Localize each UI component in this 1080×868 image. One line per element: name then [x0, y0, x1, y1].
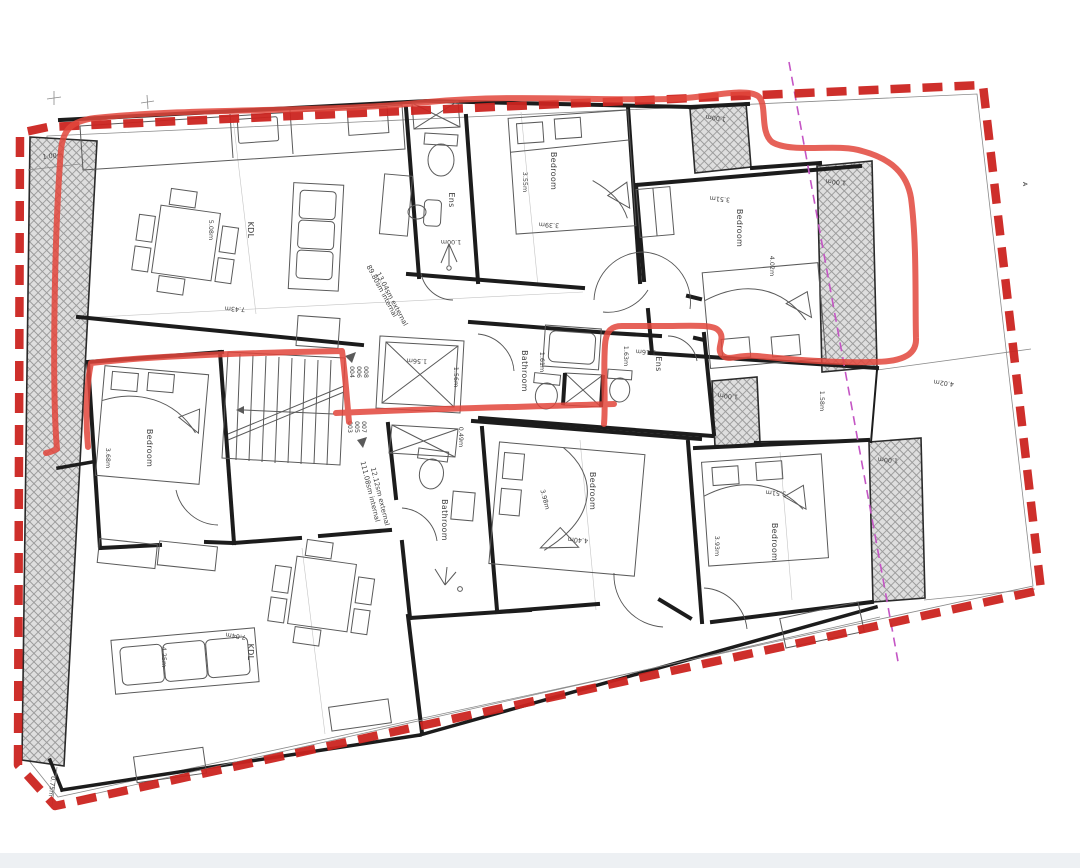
dim-1-58: 1.58m [818, 391, 826, 411]
dim-1-56-side: 1.56m [452, 367, 460, 387]
room-label-bathroom-center: Bathroom [520, 350, 529, 392]
room-label-bedroom-top: Bedroom [549, 152, 558, 190]
dim-4-25: 4.25m [160, 647, 168, 667]
room-label-bathroom-bottom: Bathroom [440, 499, 449, 541]
dim-4-02-room: 4.02m [768, 256, 776, 276]
room-label-kdl-bottom: KDL [246, 644, 255, 661]
marker-stroke-left [87, 351, 349, 447]
dim-3-68: 3.68m [104, 448, 112, 468]
shower-head-bottom [435, 567, 456, 585]
hatch-wall-mid [712, 377, 760, 447]
dim-3-51-bottomright: 3.51m [765, 488, 786, 497]
unit-007: 007 [360, 421, 367, 433]
sofa-top [288, 183, 343, 291]
dim-0-49: 0.49m [457, 427, 465, 447]
lift-shaft [376, 336, 464, 413]
area-upper-external: 13.04sm external [374, 271, 409, 328]
dim-3-51-topright: 3.51m [709, 194, 730, 204]
room-label-bedroom-bottomright: Bedroom [770, 523, 779, 561]
dim-3-93: 3.93m [713, 536, 721, 556]
footer-bar [0, 853, 1080, 868]
dining-table-bottom [265, 536, 379, 653]
marker-stroke-corridor [336, 404, 614, 413]
bed-bottom-middle [489, 442, 645, 576]
room-label-bedroom-bottomleft: Bedroom [145, 429, 154, 467]
dim-7-43: 7.43m [224, 304, 245, 313]
dim-0-75: 0.75m [47, 776, 57, 797]
dim-4-02-site: 4.02m [933, 378, 954, 388]
flat-arrow-up [345, 352, 356, 363]
room-label-ens-right: Ens [654, 356, 663, 371]
ensuite-right-fixtures [606, 369, 632, 403]
dim-5-08: 5.08m [207, 220, 215, 240]
wardrobe-bottom-left [97, 535, 217, 575]
dim-7-04: 7.04m [225, 631, 246, 642]
floorplan-drawing: KDL 5.08m 7.43m 89.80sm internal 13.04sm… [0, 0, 1080, 868]
room-label-kdl-top: KDL [246, 222, 255, 239]
staircase [222, 352, 345, 465]
floorplan-canvas: KDL 5.08m 7.43m 89.80sm internal 13.04sm… [0, 0, 1080, 868]
desk-top [379, 174, 412, 236]
flat-arrow-down [357, 437, 367, 448]
room-label-ens-top: Ens [447, 192, 456, 207]
dim-1-00-hatch-rightbottom: 1.00m [877, 455, 898, 464]
dim-4-40: 4.40m [567, 535, 588, 544]
unit-004: 004 [348, 366, 355, 378]
unit-006: 006 [355, 366, 362, 378]
hatch-wall-left [22, 137, 97, 766]
dim-3-55: 3.55m [521, 172, 529, 192]
marker-annotations [46, 92, 916, 453]
shower-head-top [441, 244, 457, 265]
hatch-wall-top-mid [690, 103, 751, 173]
dim-1-63: 1.63m [622, 346, 630, 366]
marker-stroke-loop [46, 92, 916, 453]
unit-005: 005 [353, 421, 360, 433]
dim-3-39: 3.39m [538, 220, 559, 229]
dim-1-16: 1.16m [635, 347, 656, 356]
room-label-bedroom-bottommid: Bedroom [588, 472, 597, 510]
dim-1-61: 1.61m [538, 352, 546, 372]
room-label-bedroom-topright: Bedroom [735, 209, 744, 247]
hatch-wall-right-top [817, 161, 877, 372]
section-marker-a: A [1021, 182, 1029, 187]
dim-3-98: 3.98m [538, 489, 551, 511]
dim-1-56-top: 1.56m [406, 356, 427, 365]
dining-table-top [129, 185, 243, 302]
unit-008: 008 [362, 366, 369, 378]
toilet-top-ens [428, 144, 454, 176]
dim-1-00-ens: 1.00m [441, 238, 461, 246]
